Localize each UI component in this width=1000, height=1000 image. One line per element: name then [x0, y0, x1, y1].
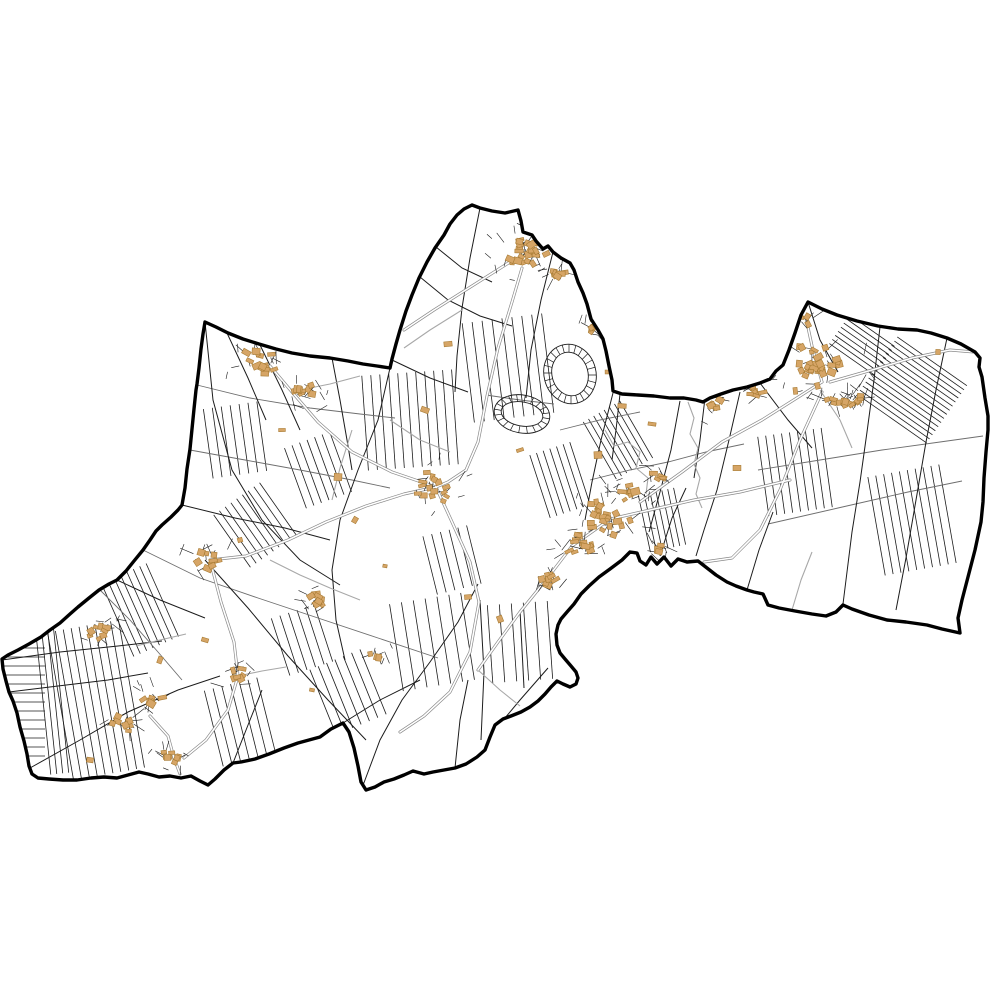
cadastral-map-canvas	[0, 0, 1000, 1000]
map-background	[0, 0, 1000, 1000]
map-viewport	[0, 0, 1000, 1000]
